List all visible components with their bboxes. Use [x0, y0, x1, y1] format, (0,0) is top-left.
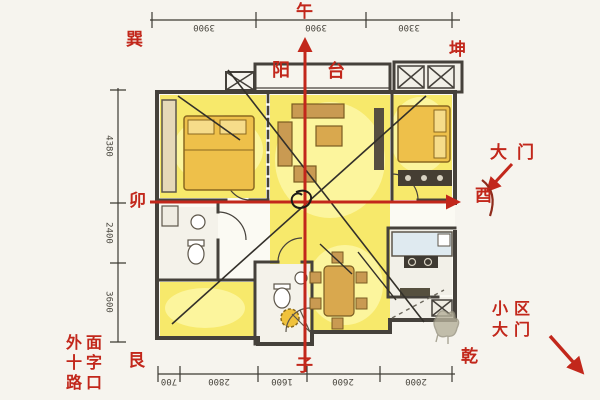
sofa [292, 104, 344, 118]
community-gate-line-1: 小区 [492, 298, 536, 319]
compass-label-you: 酉 [475, 188, 492, 205]
compass-label-mao: 卯 [129, 193, 146, 210]
crossroad-label: 外面 十字 路口 [66, 333, 106, 393]
coffee-table [316, 126, 342, 146]
community-gate-line-2: 大门 [492, 319, 536, 340]
dining-table [324, 266, 354, 316]
dim-left-3: 3600 [104, 291, 113, 313]
entry-mat [400, 288, 430, 296]
crossroad-line-3: 路口 [66, 373, 106, 393]
dim-left-1: 4380 [104, 135, 113, 157]
dim-bottom-4: 2600 [332, 376, 354, 385]
crossroad-line-2: 十字 [66, 353, 106, 373]
balcony-label-2: 台 [327, 63, 345, 81]
compass-label-qian: 乾 [461, 349, 478, 366]
balcony-label-1: 阳 [272, 62, 290, 80]
dim-bottom-3: 1600 [271, 376, 293, 385]
fengshui-floorplan: 巽 午 坤 卯 酉 艮 子 乾 阳 台 大门 小区 大门 外面 十字 路口 39… [0, 0, 600, 400]
crossroad-line-1: 外面 [66, 333, 106, 353]
compass-label-gen: 艮 [128, 353, 145, 370]
compass-label-kun: 坤 [449, 42, 466, 59]
dim-bottom-5: 2000 [405, 376, 427, 385]
main-door-label: 大门 [490, 145, 544, 162]
dim-top-2: 3900 [305, 22, 327, 31]
dim-left-2: 2400 [104, 222, 113, 244]
compass-label-zi: 子 [296, 358, 313, 375]
community-gate-label: 小区 大门 [492, 298, 536, 340]
wardrobe [162, 100, 176, 192]
compass-label-wu: 午 [296, 4, 313, 21]
dim-bottom-1: 700 [161, 376, 177, 385]
dim-top-1: 3900 [193, 22, 215, 31]
dim-top-3: 3300 [398, 22, 420, 31]
dim-bottom-2: 2800 [208, 376, 230, 385]
compass-label-xun: 巽 [126, 32, 143, 49]
